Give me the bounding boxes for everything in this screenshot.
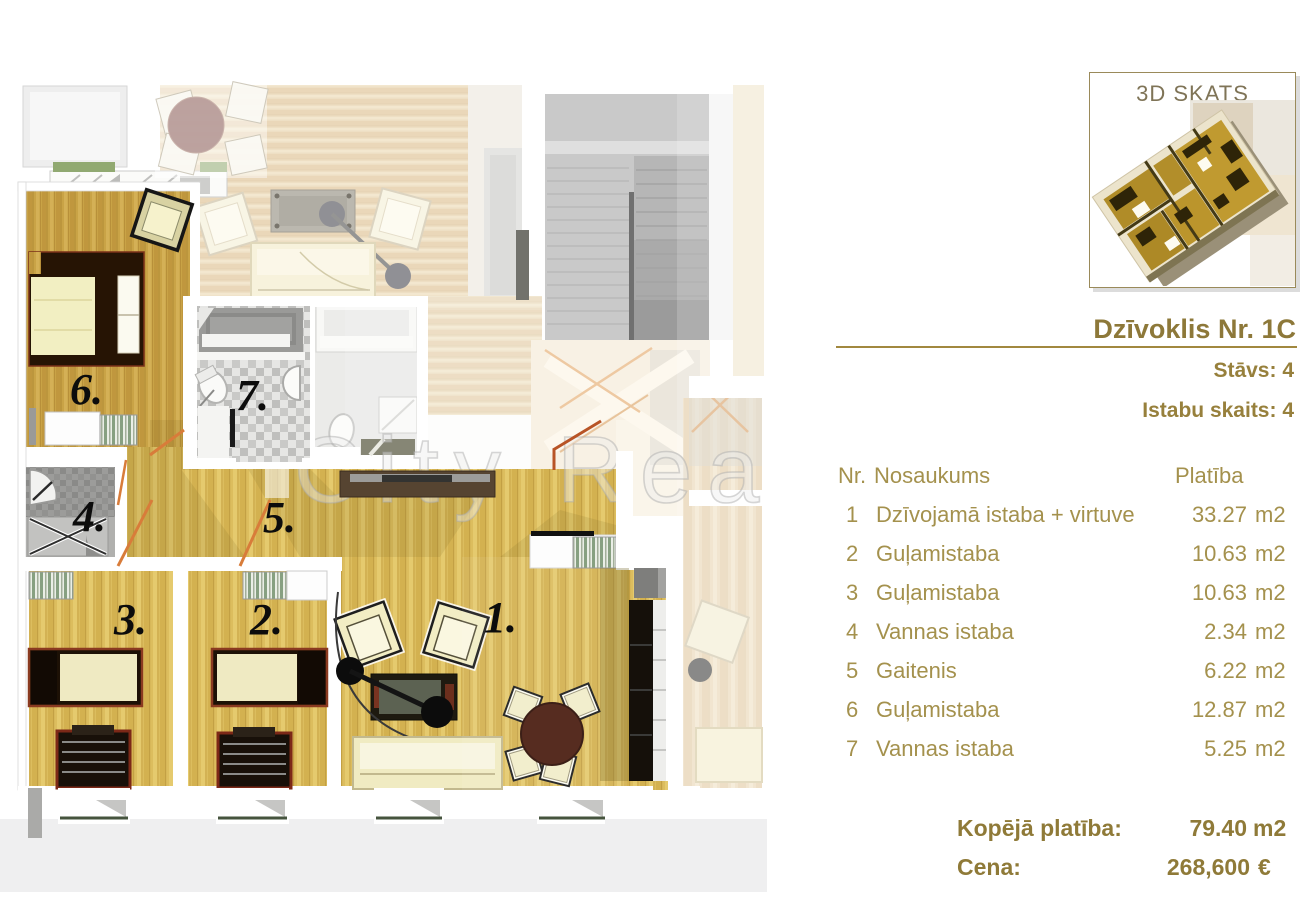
svg-text:City Rea: City Rea <box>294 417 774 522</box>
svg-text:6.: 6. <box>70 365 103 414</box>
svg-text:4.: 4. <box>72 492 106 541</box>
svg-text:7.: 7. <box>236 371 269 420</box>
svg-text:5.: 5. <box>263 493 296 542</box>
svg-text:3.: 3. <box>113 595 147 644</box>
svg-text:1.: 1. <box>484 593 517 642</box>
svg-text:2.: 2. <box>249 595 283 644</box>
